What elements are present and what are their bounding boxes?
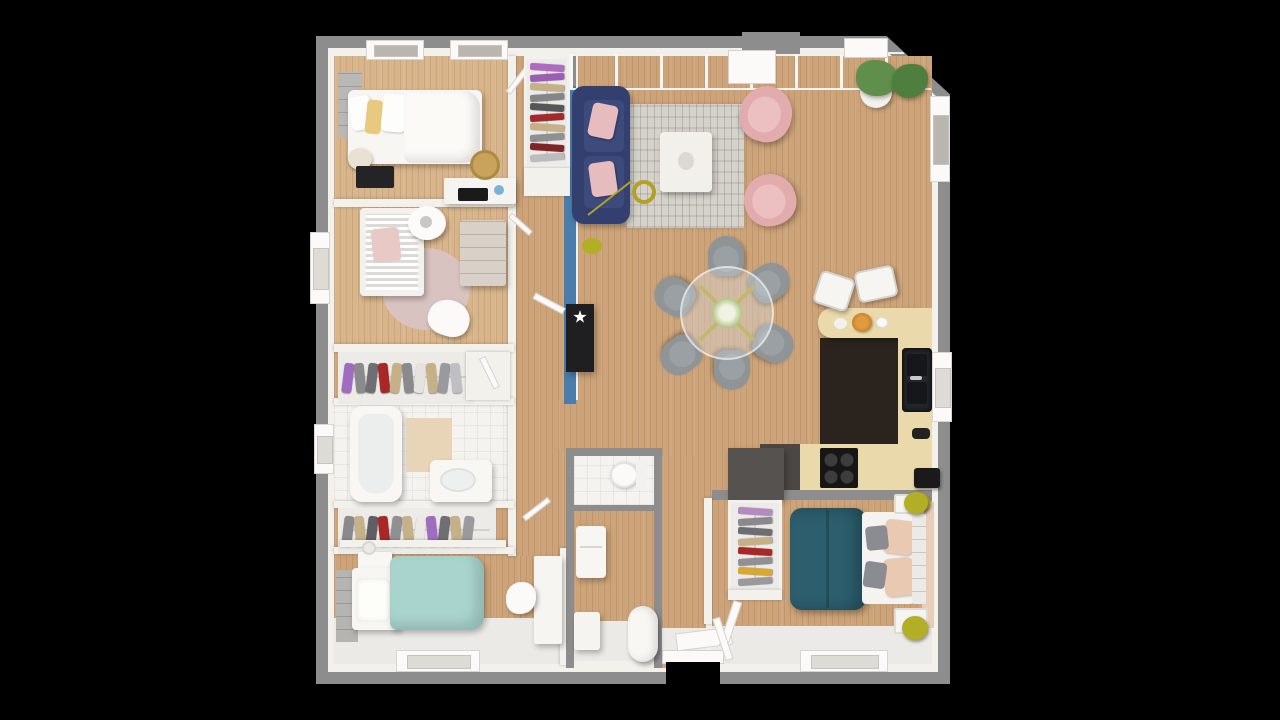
kitchen-window-top — [930, 96, 950, 182]
clothes-item — [341, 363, 355, 394]
arc-lamp-base — [582, 238, 602, 254]
master-wardrobe-rack — [728, 500, 782, 592]
clothes-item — [738, 526, 772, 535]
clothes-item — [530, 82, 564, 91]
sink-window — [932, 352, 952, 422]
br1-desk-lamp — [494, 185, 504, 195]
clothes-item — [738, 556, 772, 565]
bedroom1-window-1 — [366, 40, 424, 60]
floor-plan-render — [0, 0, 1280, 720]
clothes-item — [530, 92, 564, 101]
wall-bath-closet — [334, 501, 514, 508]
br2-pillow — [356, 578, 390, 622]
breakfast-plate — [834, 318, 847, 329]
closet-rack-upper — [338, 352, 474, 404]
clothes-item — [413, 363, 427, 394]
bedroom1-window-2 — [450, 40, 508, 60]
paper-roll — [616, 492, 625, 500]
master-gray-pillow-2 — [862, 561, 887, 590]
cooktop — [820, 448, 858, 488]
washer-door-line — [580, 546, 602, 548]
clothes-item — [449, 363, 462, 394]
hallway-floor-patch — [558, 400, 580, 450]
br2-seafoam-duvet — [390, 556, 484, 630]
clothes-item — [437, 363, 451, 394]
wall-master-west — [704, 498, 712, 624]
washing-machine — [576, 526, 606, 578]
clothes-item — [530, 142, 564, 151]
vanity-sink-bowl — [440, 468, 476, 492]
pastry-bowl — [852, 313, 872, 332]
clothes-item — [738, 576, 772, 585]
clothes-item — [530, 132, 564, 141]
bathtub-basin — [358, 414, 394, 494]
table-bouquet — [712, 298, 742, 328]
sink-basin-1 — [907, 354, 927, 376]
clothes-item — [530, 112, 564, 121]
clothes-item — [530, 62, 564, 71]
master-peach-pillow-2 — [882, 557, 915, 597]
toilet-tank — [636, 460, 647, 490]
olive-pouf-2 — [902, 616, 928, 640]
br2-desk — [534, 556, 562, 644]
wall-wc-top — [566, 448, 662, 456]
coffee-table-decor — [678, 152, 694, 170]
bedroom2-window — [396, 650, 480, 672]
crib-pink-blanket — [370, 227, 401, 264]
br1-duvet — [404, 91, 480, 163]
br1-black-nightstand — [356, 166, 394, 188]
window-open-panel — [844, 38, 888, 58]
bathroom-window — [314, 424, 334, 474]
clothes-item — [530, 102, 564, 111]
wall-wc-left — [566, 448, 574, 668]
duvet-fold-line — [826, 510, 829, 608]
master-wardrobe-shelf — [728, 590, 782, 600]
clothes-item — [530, 152, 564, 161]
clothes-item — [530, 122, 564, 131]
hall-wardrobe-cabinet — [524, 168, 570, 196]
front-door-opening — [666, 662, 720, 684]
clothes-item — [365, 363, 379, 394]
sliding-door-open-panel — [728, 50, 776, 84]
nursery-window — [310, 232, 330, 304]
master-headboard — [912, 514, 926, 604]
entry-bench — [574, 612, 600, 650]
wall-left-column — [508, 56, 516, 556]
nursery-pendant-bulb — [420, 216, 432, 228]
nursery-dresser — [460, 220, 506, 286]
olive-pouf-1 — [904, 492, 928, 514]
master-wardrobe-cabinet — [728, 448, 784, 500]
clothes-item — [738, 566, 772, 575]
wall-nursery-closet — [334, 344, 514, 352]
master-gray-pillow-1 — [865, 525, 889, 551]
clothes-item — [738, 506, 772, 515]
master-window — [800, 650, 888, 672]
kitchen-dark-floor — [820, 338, 898, 446]
kitchen-counter-bottom-arm — [796, 444, 932, 490]
clothes-item — [389, 363, 403, 394]
clothes-item — [530, 72, 564, 81]
kitchen-utensil — [912, 428, 930, 439]
hall-wardrobe — [524, 56, 570, 168]
coffee-cup — [876, 317, 888, 328]
arc-lamp-hoop — [632, 180, 656, 204]
br2-lamp — [362, 541, 376, 555]
clothes-item — [738, 516, 772, 525]
clothes-item — [738, 536, 772, 545]
laundry-basket — [628, 606, 658, 662]
coffee-machine — [914, 468, 940, 488]
clothes-item — [738, 546, 772, 555]
toilet-bowl — [610, 462, 638, 488]
br1-rattan-chair — [470, 150, 500, 180]
sink-basin-2 — [907, 382, 927, 404]
sink-faucet — [910, 376, 922, 380]
br1-laptop — [458, 188, 488, 201]
br2-chair — [506, 582, 536, 614]
